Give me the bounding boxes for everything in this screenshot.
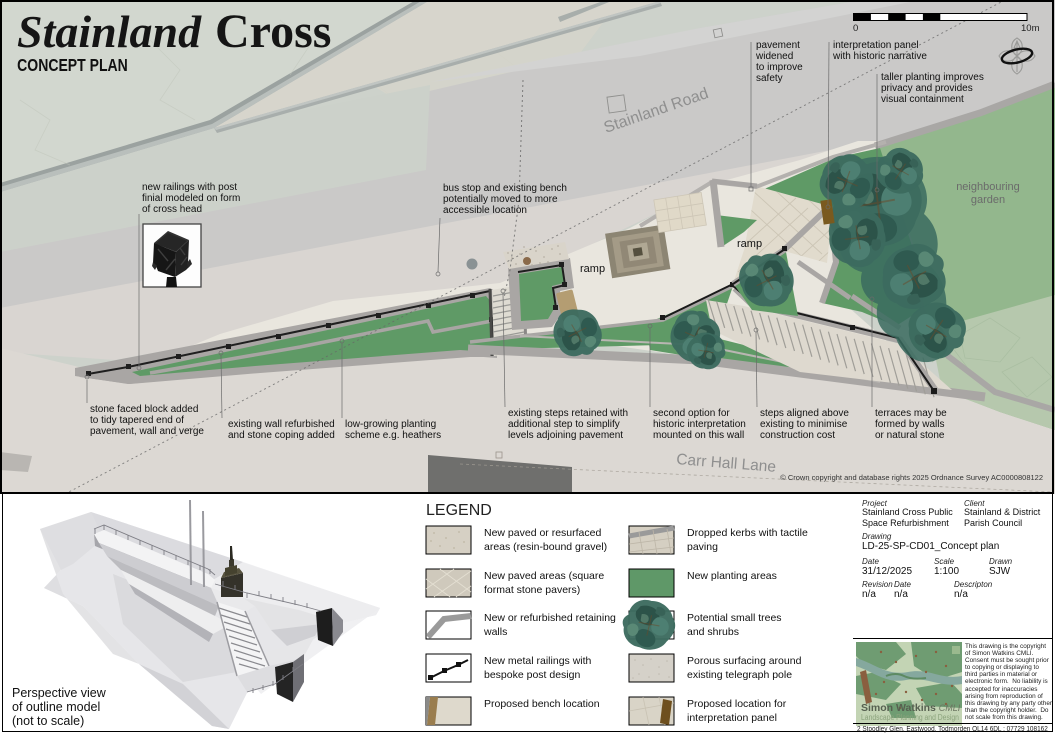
- svg-text:or natural stone: or natural stone: [875, 430, 945, 441]
- svg-text:stone faced block added: stone faced block added: [90, 404, 198, 415]
- svg-text:existing steps retained with: existing steps retained with: [508, 408, 628, 419]
- svg-text:additional step to simplify: additional step to simplify: [508, 419, 620, 430]
- svg-text:pavement, wall and verge: pavement, wall and verge: [90, 426, 204, 437]
- svg-text:Cross: Cross: [215, 5, 331, 58]
- svg-text:with historic narrative: with historic narrative: [832, 51, 927, 62]
- svg-text:taller planting improves: taller planting improves: [881, 72, 984, 83]
- svg-text:interpretation panel: interpretation panel: [833, 40, 919, 51]
- svg-text:privacy and provides: privacy and provides: [881, 83, 973, 94]
- svg-text:construction cost: construction cost: [760, 430, 835, 441]
- svg-text:accessible location: accessible location: [443, 205, 527, 216]
- svg-text:steps aligned above: steps aligned above: [760, 408, 849, 419]
- svg-text:visual containment: visual containment: [881, 94, 964, 105]
- svg-text:scheme e.g. heathers: scheme e.g. heathers: [345, 430, 441, 441]
- svg-text:Stainland: Stainland: [17, 6, 202, 57]
- svg-text:finial modeled on form: finial modeled on form: [142, 193, 240, 204]
- svg-text:of outline model: of outline model: [12, 700, 100, 714]
- svg-text:levels adjoining pavement: levels adjoining pavement: [508, 430, 623, 441]
- svg-text:CONCEPT PLAN: CONCEPT PLAN: [17, 55, 128, 75]
- svg-text:of cross head: of cross head: [142, 204, 202, 215]
- svg-text:(not to scale): (not to scale): [12, 714, 84, 728]
- svg-text:new railings with post: new railings with post: [142, 182, 237, 193]
- svg-text:10m: 10m: [1021, 23, 1040, 34]
- svg-text:Perspective view: Perspective view: [12, 686, 107, 700]
- svg-text:safety: safety: [756, 73, 783, 84]
- svg-text:garden: garden: [971, 194, 1005, 206]
- svg-text:neighbouring: neighbouring: [956, 181, 1020, 193]
- svg-text:0: 0: [853, 23, 858, 34]
- svg-text:second option for: second option for: [653, 408, 730, 419]
- svg-text:low-growing planting: low-growing planting: [345, 419, 436, 430]
- svg-text:© Crown copyright and database: © Crown copyright and database rights 20…: [780, 473, 1043, 482]
- svg-text:ramp: ramp: [580, 263, 605, 275]
- svg-text:existing to minimise: existing to minimise: [760, 419, 848, 430]
- svg-text:potentially moved to more: potentially moved to more: [443, 194, 558, 205]
- svg-text:formed by walls: formed by walls: [875, 419, 944, 430]
- svg-text:ramp: ramp: [737, 238, 762, 250]
- svg-text:existing wall refurbished: existing wall refurbished: [228, 419, 335, 430]
- svg-text:to tidy tapered end of: to tidy tapered end of: [90, 415, 184, 426]
- svg-text:bus stop and existing bench: bus stop and existing bench: [443, 183, 567, 194]
- svg-text:terraces may be: terraces may be: [875, 408, 947, 419]
- svg-text:to improve: to improve: [756, 62, 803, 73]
- svg-text:pavement: pavement: [756, 40, 800, 51]
- svg-text:widened: widened: [755, 51, 793, 62]
- svg-text:historic interpretation: historic interpretation: [653, 419, 746, 430]
- svg-text:and stone coping added: and stone coping added: [228, 430, 335, 441]
- svg-text:mounted on this wall: mounted on this wall: [653, 430, 744, 441]
